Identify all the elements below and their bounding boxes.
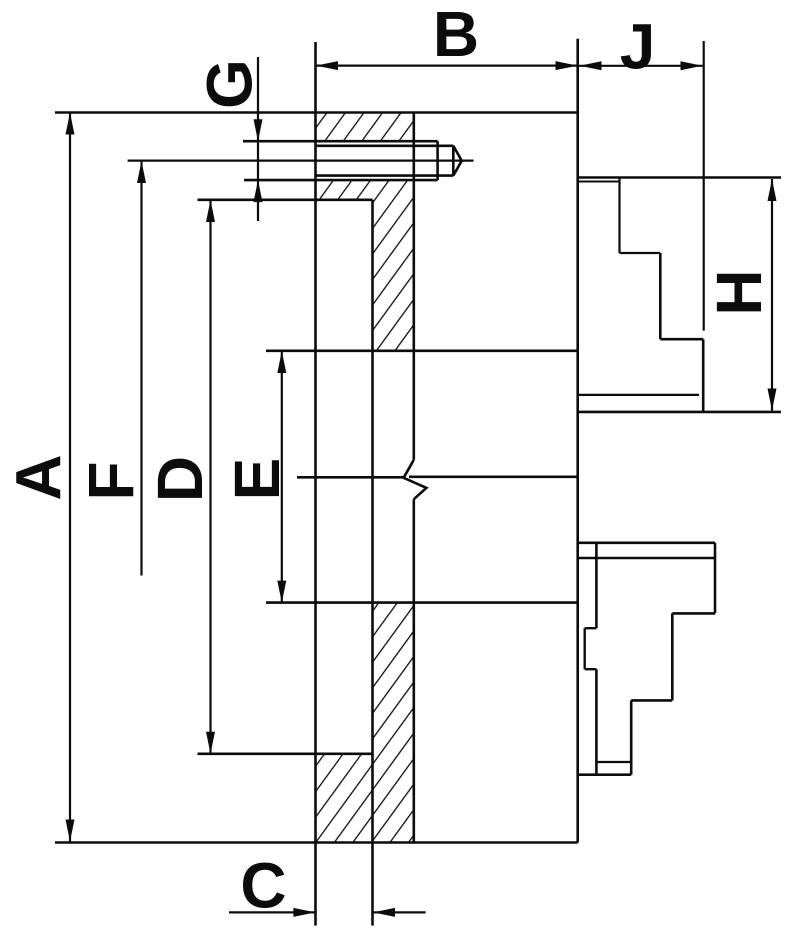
svg-text:C: C [240,850,286,922]
svg-text:D: D [144,456,216,502]
svg-text:B: B [433,0,479,70]
svg-text:H: H [703,269,775,315]
svg-text:E: E [221,458,293,501]
svg-text:G: G [194,59,266,109]
svg-text:F: F [75,461,147,500]
svg-text:J: J [620,11,656,83]
svg-text:A: A [3,454,75,500]
